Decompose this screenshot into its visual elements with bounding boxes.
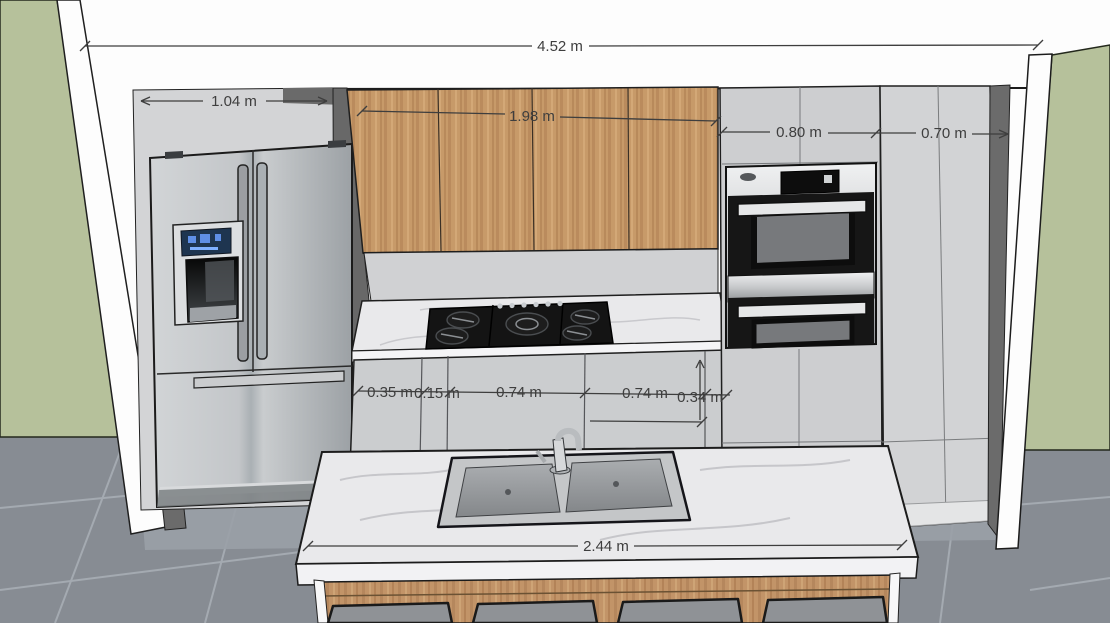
dim-label-island-length[interactable]: 2.44 m: [583, 538, 629, 555]
dim-label-total-width[interactable]: 4.52 m: [537, 38, 583, 55]
sink-drain: [505, 489, 511, 495]
dim-label-tall-cabinet[interactable]: 0.70 m: [921, 125, 967, 142]
backsplash: [364, 249, 718, 301]
kitchen-3d-viewport[interactable]: 4.52 m 1.04 m 1.98 m 0.80 m 0.70 m 0.35 …: [0, 0, 1110, 623]
island-end-trim-right: [888, 573, 900, 623]
fridge-hinge-left: [165, 151, 183, 159]
dim-label-upper-cabinets[interactable]: 1.98 m: [509, 108, 555, 125]
oven-display-button: [824, 175, 832, 183]
fridge-hinge-right: [328, 140, 346, 148]
dim-label-base-seg-2[interactable]: 0.74 m: [496, 384, 542, 401]
dispenser-back-light: [205, 260, 234, 302]
gas-cooktop[interactable]: [426, 301, 613, 349]
dim-label-fridge-alcove[interactable]: 1.04 m: [211, 93, 257, 110]
oven-lower-window: [754, 318, 852, 346]
ice-water-dispenser: [173, 221, 243, 325]
sink-drain: [613, 481, 619, 487]
tall-cabinets[interactable]: [880, 86, 1002, 528]
stool-seat: [618, 599, 742, 623]
dim-label-base-seg-1[interactable]: 0.15 m: [414, 385, 460, 402]
stool-seat: [328, 603, 452, 623]
dim-label-base-seg-0[interactable]: 0.35 m: [367, 384, 413, 401]
stool-seat: [763, 597, 887, 623]
sink-bowl-right: [566, 459, 672, 512]
dim-label-base-seg-4[interactable]: 0.34 m: [677, 389, 723, 406]
dim-label-oven-column[interactable]: 0.80 m: [776, 124, 822, 141]
oven-brand-mark: [740, 173, 756, 181]
dim-label-base-seg-3[interactable]: 0.74 m: [622, 385, 668, 402]
fridge-handle-right: [257, 163, 267, 359]
island[interactable]: [296, 431, 918, 623]
double-wall-oven[interactable]: [726, 163, 876, 348]
oven-upper-window: [754, 210, 852, 266]
stool-seat: [473, 601, 597, 623]
